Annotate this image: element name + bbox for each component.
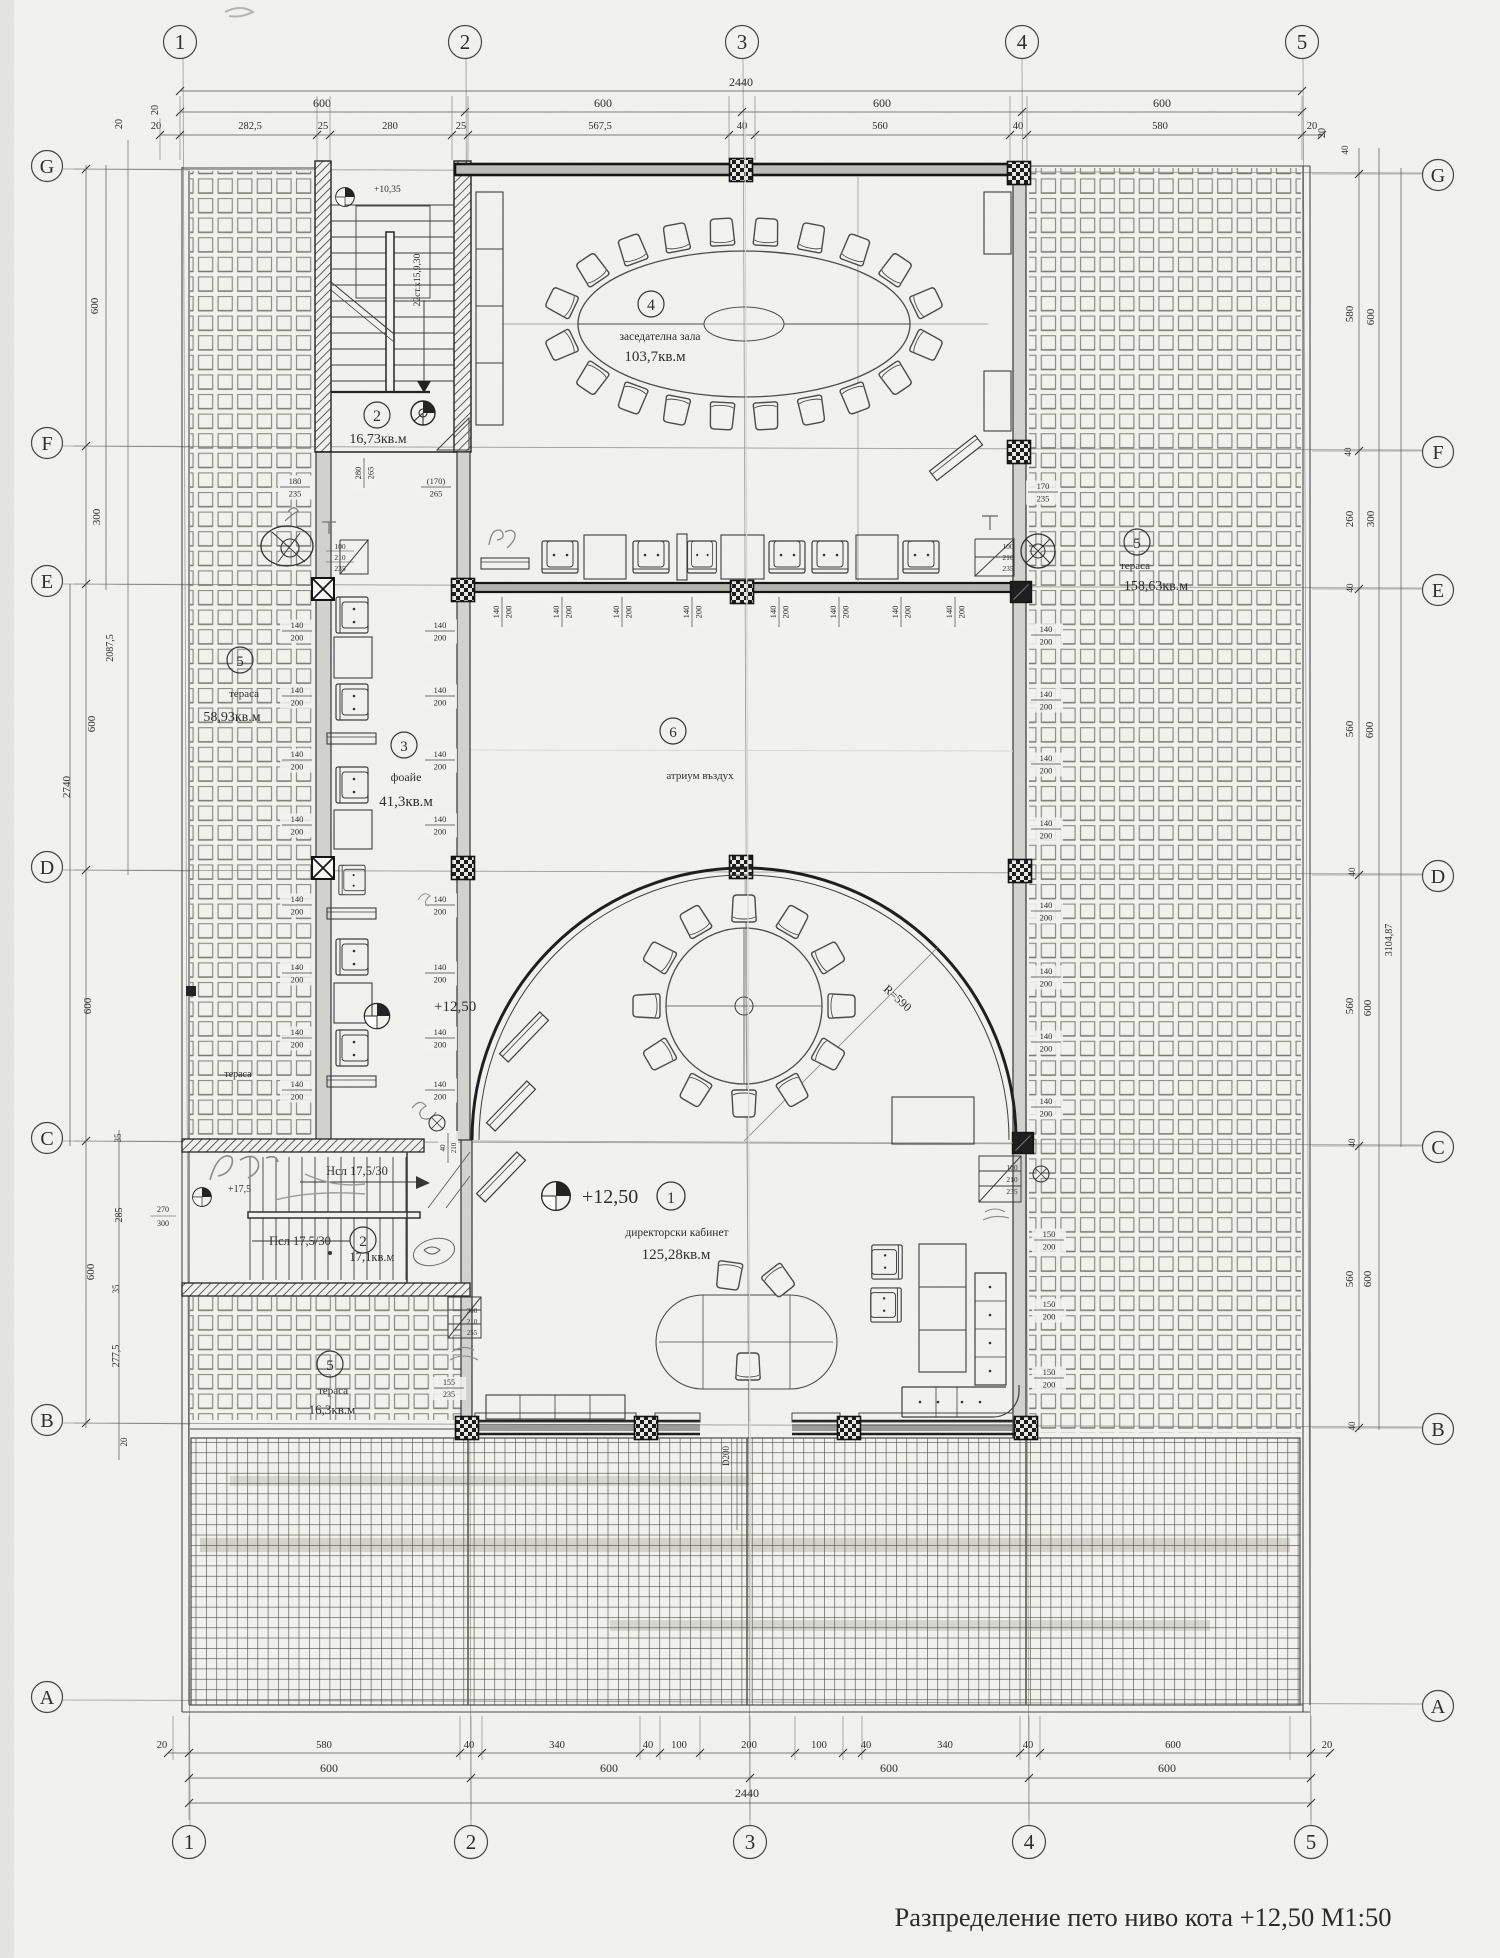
svg-text:Разпределение пето ниво кота +: Разпределение пето ниво кота +12,50 М1:5…: [894, 1902, 1391, 1932]
